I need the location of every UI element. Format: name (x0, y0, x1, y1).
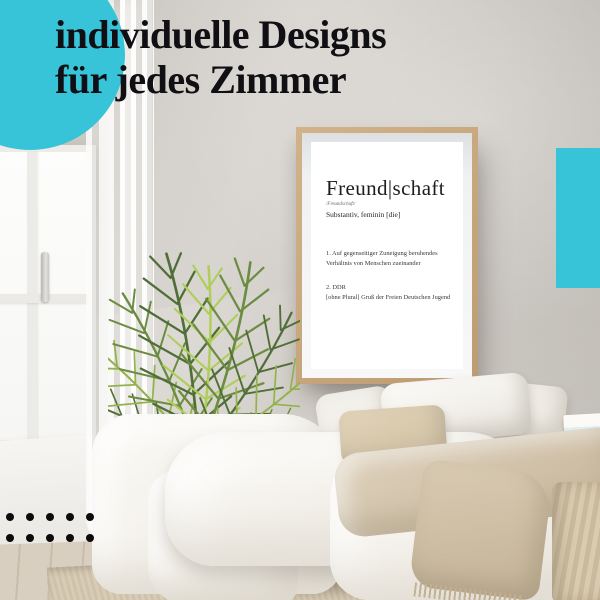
poster-title: Freund|schaft (326, 178, 450, 199)
poster-definition-1: 1. Auf gegenseitiger Zuneigung beruhende… (326, 249, 450, 269)
bedroom-scene: Freund|schaft /Freundschaft/ Substantiv,… (0, 0, 600, 600)
dot (6, 534, 14, 542)
poster-definition-2-label: 2. DDR (326, 284, 450, 291)
dot (86, 534, 94, 542)
dot (6, 513, 14, 521)
poster-definition-2-text: [ohne Plural] Gruß der Freien Deutschen … (326, 293, 452, 303)
poster-mat: Freund|schaft /Freundschaft/ Substantiv,… (302, 133, 472, 378)
window-handle (41, 252, 49, 302)
dot (26, 534, 34, 542)
poster-word-type: Substantiv, feminin [die] (326, 210, 450, 219)
throw-blanket-drape (409, 459, 554, 600)
dot (66, 534, 74, 542)
window (0, 145, 96, 447)
dot (86, 513, 94, 521)
dot (66, 513, 74, 521)
knit-blanket (552, 482, 600, 600)
headline-line-1: individuelle Designs (55, 12, 386, 57)
poster-paper: Freund|schaft /Freundschaft/ Substantiv,… (311, 142, 463, 369)
headline: individuelle Designs für jedes Zimmer (55, 12, 386, 102)
poster-frame: Freund|schaft /Freundschaft/ Substantiv,… (296, 127, 478, 384)
dot (26, 513, 34, 521)
dot (46, 513, 54, 521)
dot (46, 534, 54, 542)
poster-phonetic: /Freundschaft/ (326, 202, 450, 207)
headline-line-2: für jedes Zimmer (55, 57, 386, 102)
accent-rectangle (556, 148, 600, 288)
dot-grid (6, 513, 106, 542)
throw-fringe (413, 582, 524, 600)
